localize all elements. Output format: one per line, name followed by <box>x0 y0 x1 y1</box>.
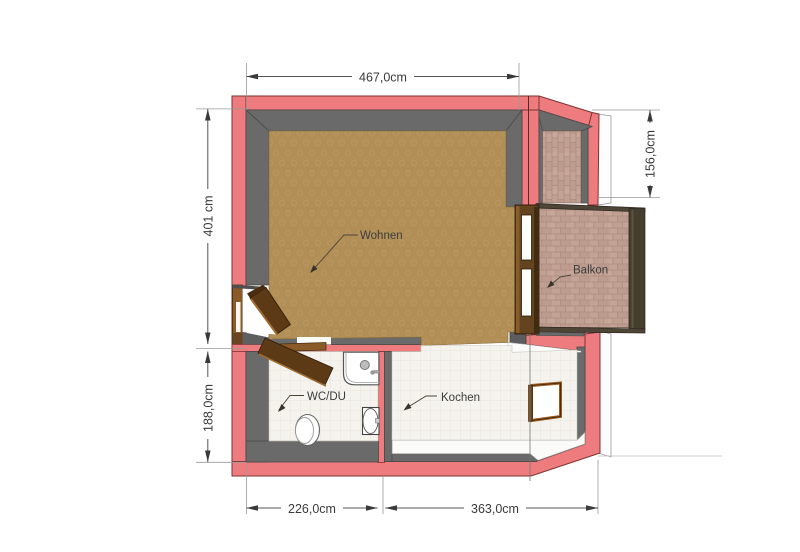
svg-text:Kochen: Kochen <box>441 392 480 404</box>
svg-text:226,0cm: 226,0cm <box>288 502 336 516</box>
svg-text:401 cm: 401 cm <box>202 196 216 237</box>
svg-text:Balkon: Balkon <box>573 265 608 277</box>
svg-text:Wohnen: Wohnen <box>360 230 403 242</box>
svg-text:467,0cm: 467,0cm <box>359 71 407 85</box>
svg-text:WC/DU: WC/DU <box>307 391 346 403</box>
svg-text:363,0cm: 363,0cm <box>471 502 519 516</box>
svg-text:188,0cm: 188,0cm <box>202 384 216 432</box>
svg-text:156,0cm: 156,0cm <box>644 130 658 178</box>
